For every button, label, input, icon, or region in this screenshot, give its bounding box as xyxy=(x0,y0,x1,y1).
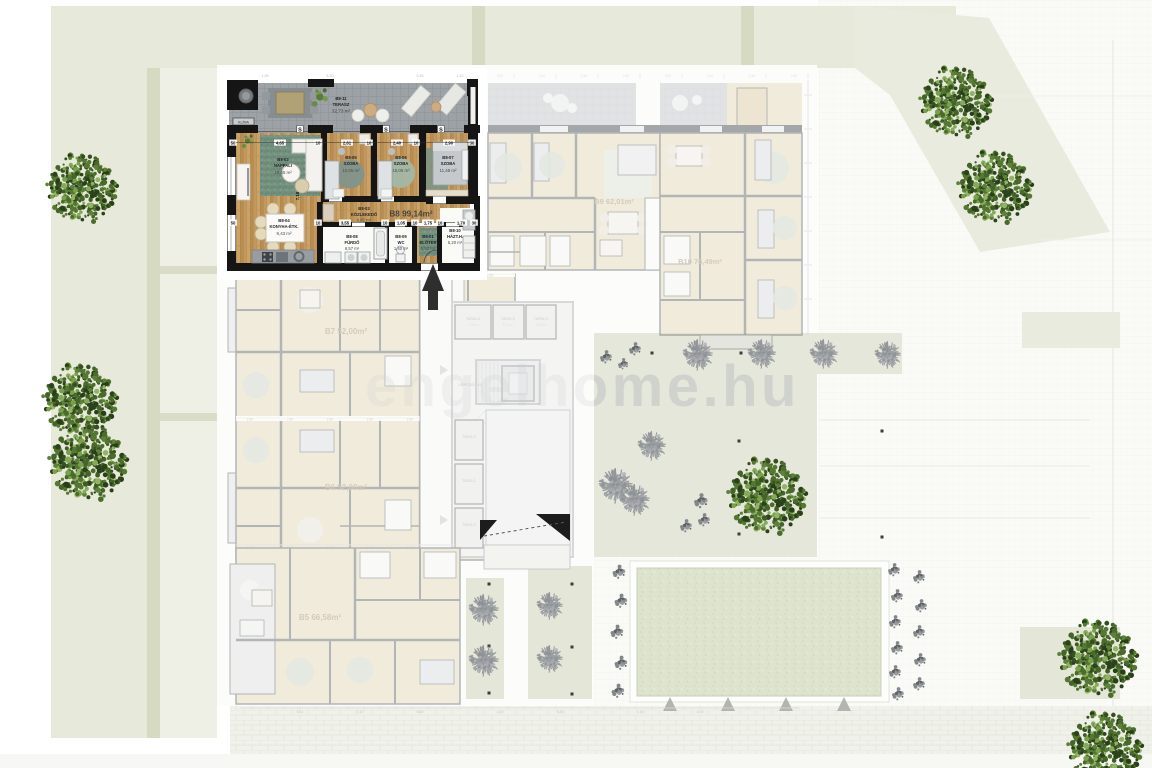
svg-text:4,00: 4,00 xyxy=(697,710,704,714)
svg-text:10: 10 xyxy=(367,141,372,146)
svg-text:2,40: 2,40 xyxy=(247,418,254,422)
svg-text:1,10: 1,10 xyxy=(637,710,644,714)
svg-text:B8-02: B8-02 xyxy=(277,157,289,162)
svg-text:30: 30 xyxy=(472,221,477,226)
svg-text:KÖZLEKEDŐ: KÖZLEKEDŐ xyxy=(351,212,378,217)
svg-text:2,90: 2,90 xyxy=(445,141,454,146)
svg-text:HÁZT.H.: HÁZT.H. xyxy=(447,234,463,239)
svg-text:SZOBA: SZOBA xyxy=(344,161,359,166)
svg-text:10,05 m²: 10,05 m² xyxy=(342,168,360,173)
svg-text:WC: WC xyxy=(398,240,405,245)
svg-text:50: 50 xyxy=(231,141,236,146)
svg-text:10: 10 xyxy=(438,221,443,226)
svg-text:1,05: 1,05 xyxy=(397,221,406,226)
svg-text:B7 52,00m²: B7 52,00m² xyxy=(325,327,368,336)
svg-text:ELŐTÉR: ELŐTÉR xyxy=(420,240,437,245)
svg-text:S: S xyxy=(439,128,443,134)
svg-text:SZOBA: SZOBA xyxy=(394,161,409,166)
svg-text:3,55: 3,55 xyxy=(341,221,350,226)
svg-text:SZOBA: SZOBA xyxy=(441,161,456,166)
svg-text:TERASZ: TERASZ xyxy=(333,102,350,107)
svg-text:2,40: 2,40 xyxy=(539,74,546,78)
svg-text:1,10: 1,10 xyxy=(357,710,364,714)
svg-text:1,10: 1,10 xyxy=(457,74,464,78)
svg-text:15,05 m²: 15,05 m² xyxy=(392,168,410,173)
svg-text:S: S xyxy=(384,128,388,134)
svg-text:B8-01: B8-01 xyxy=(422,234,434,239)
svg-text:KLÍMA: KLÍMA xyxy=(238,120,249,124)
svg-text:B8-09: B8-09 xyxy=(395,234,407,239)
svg-text:4,65: 4,65 xyxy=(276,141,285,146)
svg-text:6,57 m²: 6,57 m² xyxy=(345,246,360,251)
svg-text:2,40: 2,40 xyxy=(707,74,714,78)
svg-text:B8-08: B8-08 xyxy=(346,234,358,239)
svg-text:2,40: 2,40 xyxy=(623,74,630,78)
svg-text:B8-06: B8-06 xyxy=(395,155,407,160)
svg-text:B8-03: B8-03 xyxy=(358,206,370,211)
svg-text:6,30: 6,30 xyxy=(327,74,334,78)
svg-text:TÁROLÓ: TÁROLÓ xyxy=(501,316,516,321)
svg-text:1,99: 1,99 xyxy=(262,74,269,78)
svg-text:2,40: 2,40 xyxy=(393,141,402,146)
svg-text:11,48 m²: 11,48 m² xyxy=(439,168,457,173)
svg-text:B10 76,49m²: B10 76,49m² xyxy=(678,257,722,266)
svg-text:32,73 m²: 32,73 m² xyxy=(332,109,351,114)
svg-text:6,30: 6,30 xyxy=(417,710,424,714)
svg-text:10: 10 xyxy=(383,221,388,226)
svg-text:3,55: 3,55 xyxy=(487,274,494,278)
svg-text:9,43 m²: 9,43 m² xyxy=(277,231,292,236)
svg-text:NAPPALI: NAPPALI xyxy=(274,163,292,168)
svg-text:TÁROLÓ: TÁROLÓ xyxy=(534,316,549,321)
svg-text:2,40: 2,40 xyxy=(665,74,672,78)
svg-text:2,72 m²: 2,72 m² xyxy=(503,323,514,327)
svg-text:2,40: 2,40 xyxy=(791,74,798,78)
svg-text:1,75: 1,75 xyxy=(424,221,433,226)
svg-text:FÜRDŐ: FÜRDŐ xyxy=(345,240,361,245)
svg-text:KONYHA-ÉTK.: KONYHA-ÉTK. xyxy=(269,224,298,229)
svg-text:5,20 m²: 5,20 m² xyxy=(448,240,463,245)
svg-text:B6 52,00m²: B6 52,00m² xyxy=(325,483,368,492)
svg-text:10: 10 xyxy=(316,221,321,226)
svg-text:1,70: 1,70 xyxy=(457,221,466,226)
svg-text:B8-07: B8-07 xyxy=(442,155,454,160)
svg-text:B5 66,58m²: B5 66,58m² xyxy=(299,613,342,622)
svg-text:50: 50 xyxy=(231,221,236,226)
svg-text:2,40: 2,40 xyxy=(287,418,294,422)
svg-text:B9 62,01m²: B9 62,01m² xyxy=(594,197,634,206)
svg-text:TÁROLÓ: TÁROLÓ xyxy=(462,434,476,439)
svg-text:5,41: 5,41 xyxy=(297,710,304,714)
svg-text:1,10: 1,10 xyxy=(497,710,504,714)
svg-text:B8-05: B8-05 xyxy=(345,155,357,160)
svg-text:2,40: 2,40 xyxy=(749,74,756,78)
svg-text:10: 10 xyxy=(414,141,419,146)
svg-text:2,40: 2,40 xyxy=(497,74,504,78)
svg-text:1,40 m²: 1,40 m² xyxy=(394,246,409,251)
svg-text:2,75 m²: 2,75 m² xyxy=(468,323,479,327)
svg-text:2,40: 2,40 xyxy=(581,74,588,78)
svg-text:2,40: 2,40 xyxy=(327,418,334,422)
svg-text:19,65 m²: 19,65 m² xyxy=(274,170,292,175)
svg-text:TÁROLÓ: TÁROLÓ xyxy=(462,522,476,527)
svg-text:B8-04: B8-04 xyxy=(278,218,290,223)
svg-text:10: 10 xyxy=(413,221,418,226)
svg-text:B8-10: B8-10 xyxy=(449,228,461,233)
svg-text:10: 10 xyxy=(316,141,321,146)
svg-text:B8 99,14m²: B8 99,14m² xyxy=(389,210,433,219)
svg-text:2,61: 2,61 xyxy=(343,141,352,146)
svg-text:6,82 m²: 6,82 m² xyxy=(357,218,372,223)
svg-text:S: S xyxy=(298,128,302,134)
svg-text:5,45: 5,45 xyxy=(417,74,424,78)
svg-text:B8-11: B8-11 xyxy=(335,96,347,101)
svg-text:TÁROLÓ: TÁROLÓ xyxy=(466,316,481,321)
svg-text:5,45: 5,45 xyxy=(557,710,564,714)
svg-text:2,75 m²: 2,75 m² xyxy=(536,323,547,327)
svg-text:30: 30 xyxy=(470,141,475,146)
svg-text:TÁROLÓ: TÁROLÓ xyxy=(462,478,476,483)
svg-text:7,10: 7,10 xyxy=(295,191,300,200)
